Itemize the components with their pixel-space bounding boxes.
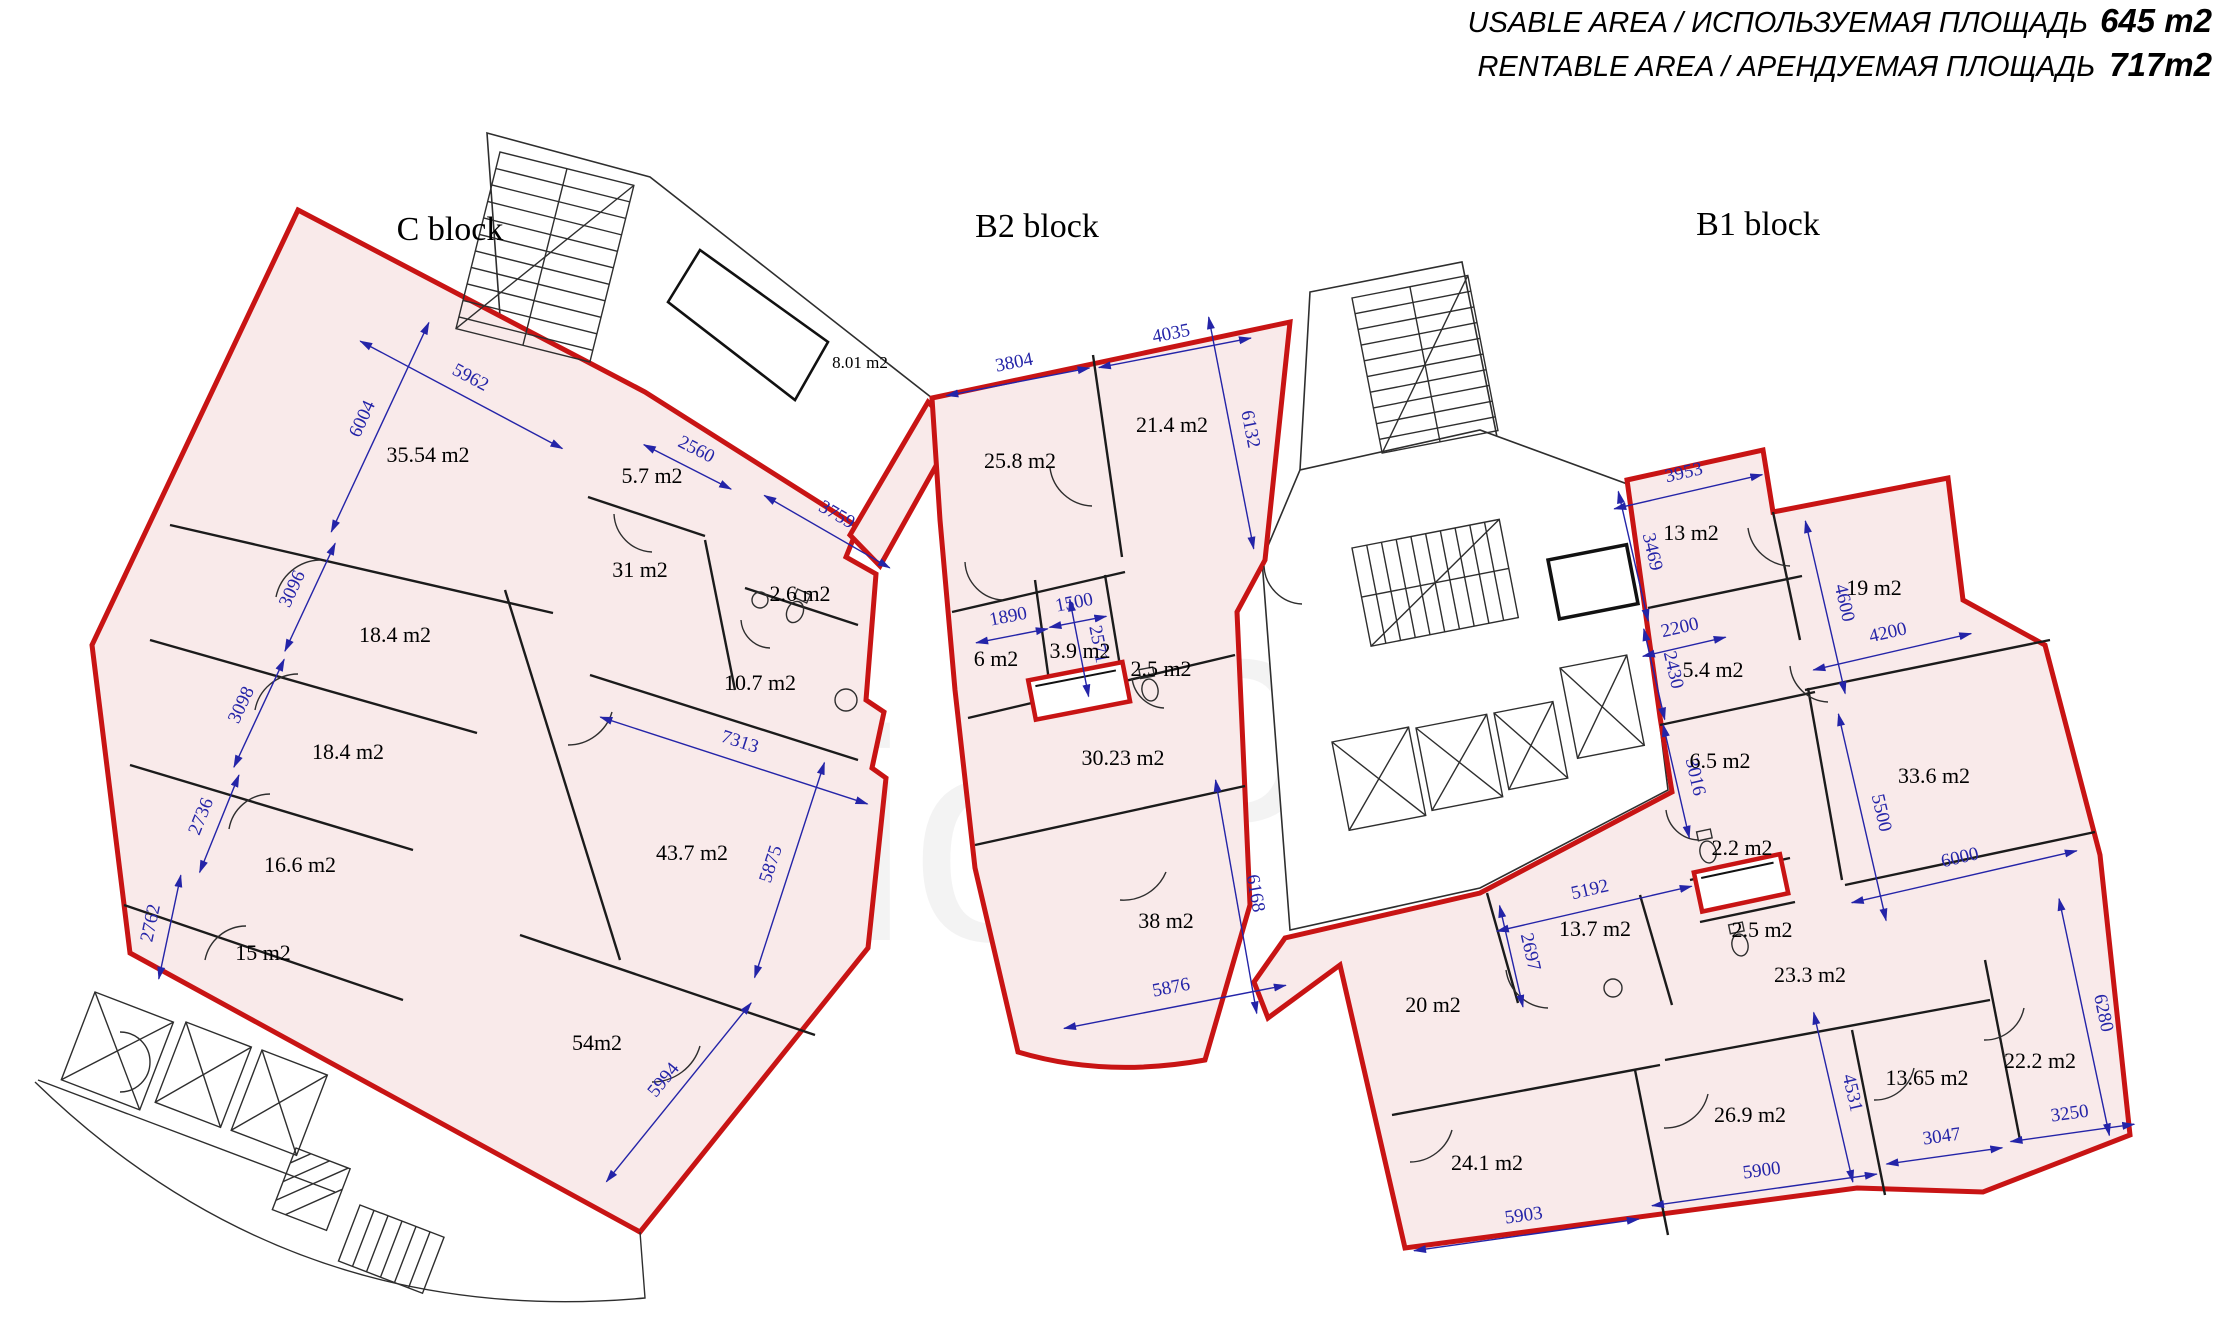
rentable-area-line: RENTABLE AREA / АРЕНДУЕМАЯ ПЛОЩАДЬ717m2 [1477, 46, 2212, 83]
usable-area-value: 645 m2 [2100, 2, 2213, 39]
room-label: 26.9 m2 [1714, 1102, 1786, 1127]
block-title-c: C block [397, 211, 504, 248]
room-label: 19 m2 [1846, 575, 1902, 600]
room-label: 13.65 m2 [1885, 1065, 1968, 1090]
room-label: 18.4 m2 [359, 622, 431, 647]
room-label: 2.5 m2 [1731, 917, 1792, 942]
room-label: 23.3 m2 [1774, 962, 1846, 987]
usable-area-line: USABLE AREA / ИСПОЛЬЗУЕМАЯ ПЛОЩАДЬ645 m2 [1468, 2, 2213, 39]
usable-area-label: USABLE AREA / ИСПОЛЬЗУЕМАЯ ПЛОЩАДЬ [1468, 7, 2088, 39]
room-label: 2.2 m2 [1711, 835, 1772, 860]
room-label: 2.6 m2 [769, 581, 830, 606]
elevator-icon [155, 1022, 251, 1127]
lift-shaft [1548, 545, 1638, 619]
room-label: 16.6 m2 [264, 852, 336, 877]
room-label: 15 m2 [235, 940, 291, 965]
staircase-icon [338, 1205, 444, 1293]
room-label: 31 m2 [612, 557, 668, 582]
elevator-icon [231, 1050, 327, 1155]
room-label: 5.4 m2 [1682, 657, 1743, 682]
rentable-area-label: RENTABLE AREA / АРЕНДУЕМАЯ ПЛОЩАДЬ [1477, 51, 2095, 83]
room-label: 38 m2 [1138, 908, 1194, 933]
room-label: 10.7 m2 [724, 670, 796, 695]
rentable-area-value: 717m2 [2109, 46, 2212, 83]
room-label: 30.23 m2 [1081, 745, 1164, 770]
room-label: 2.5 m2 [1130, 656, 1191, 681]
room-label: 5.7 m2 [621, 463, 682, 488]
dimension-label: 3804 [994, 349, 1036, 377]
room-label: 24.1 m2 [1451, 1150, 1523, 1175]
room-label: 22.2 m2 [2004, 1048, 2076, 1073]
floor-plan-canvas: onlio oins [0, 0, 2218, 1342]
room-label: 54m2 [572, 1030, 622, 1055]
room-label: 6.5 m2 [1689, 748, 1750, 773]
room-label: 20 m2 [1405, 992, 1461, 1017]
room-label: 43.7 m2 [656, 840, 728, 865]
room-label: 33.6 m2 [1898, 763, 1970, 788]
area-summary-header: USABLE AREA / ИСПОЛЬЗУЕМАЯ ПЛОЩАДЬ645 m2… [1468, 2, 2213, 83]
block-title-b2: B2 block [975, 208, 1099, 245]
room-label: 21.4 m2 [1136, 412, 1208, 437]
room-label: 8.01 m2 [832, 353, 888, 372]
elevator-icon [61, 992, 173, 1110]
room-label: 13.7 m2 [1559, 916, 1631, 941]
room-label: 13 m2 [1663, 520, 1719, 545]
room-label: 35.54 m2 [386, 442, 469, 467]
shaft-hatched [272, 1148, 350, 1230]
room-label: 25.8 m2 [984, 448, 1056, 473]
floor-plan-page: onlio oins [0, 0, 2218, 1342]
room-label: 3.9 m2 [1049, 638, 1110, 663]
room-label: 6 m2 [974, 646, 1019, 671]
block-title-b1: B1 block [1696, 206, 1820, 243]
room-label: 18.4 m2 [312, 739, 384, 764]
